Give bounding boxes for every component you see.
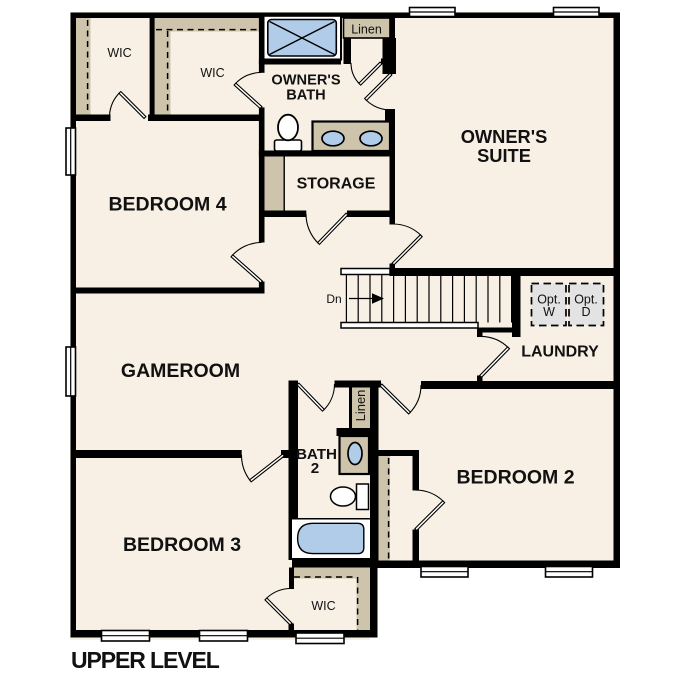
svg-text:BATH: BATH: [286, 88, 325, 104]
svg-text:BEDROOM 2: BEDROOM 2: [456, 467, 574, 489]
svg-text:SUITE: SUITE: [477, 145, 531, 166]
svg-text:W: W: [543, 305, 555, 319]
svg-text:OWNER'S: OWNER'S: [461, 126, 548, 147]
svg-text:UPPER LEVEL: UPPER LEVEL: [71, 647, 220, 673]
svg-text:GAMEROOM: GAMEROOM: [121, 360, 240, 382]
svg-text:LAUNDRY: LAUNDRY: [521, 344, 599, 361]
svg-text:BEDROOM 4: BEDROOM 4: [108, 194, 226, 216]
svg-text:BEDROOM 3: BEDROOM 3: [123, 534, 241, 556]
svg-text:Linen: Linen: [351, 23, 382, 37]
svg-text:OWNER'S: OWNER'S: [271, 73, 340, 89]
svg-text:WIC: WIC: [200, 66, 224, 80]
svg-text:STORAGE: STORAGE: [297, 176, 376, 193]
svg-text:WIC: WIC: [311, 599, 335, 613]
svg-text:WIC: WIC: [107, 46, 131, 60]
svg-text:D: D: [581, 305, 590, 319]
svg-text:2: 2: [311, 460, 319, 477]
svg-text:Linen: Linen: [353, 390, 368, 422]
svg-text:Dn: Dn: [326, 292, 341, 306]
